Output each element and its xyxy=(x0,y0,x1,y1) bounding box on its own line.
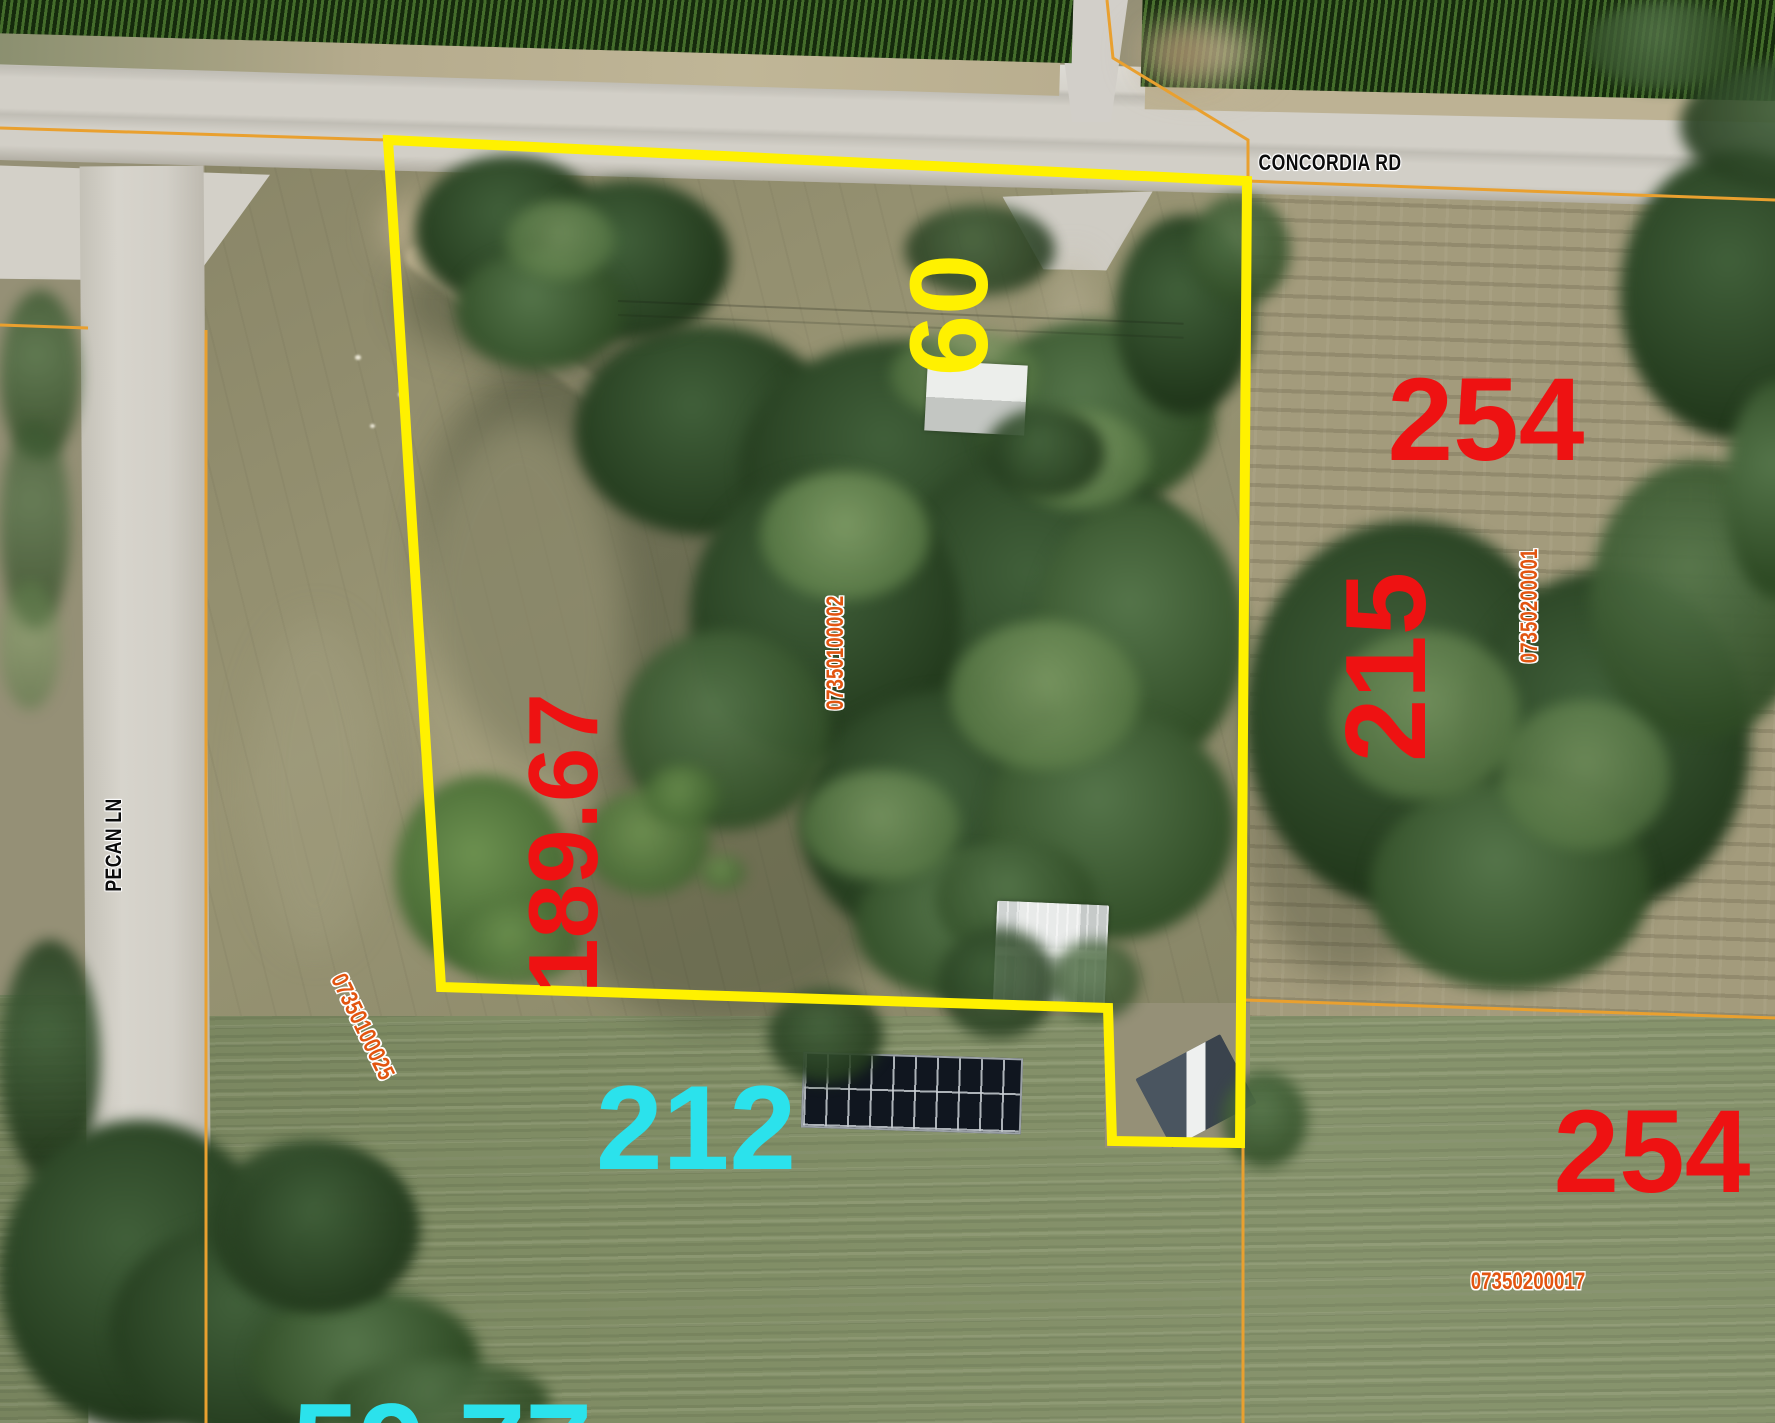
lot-number-partial-bottom: 59.77 xyxy=(292,1386,592,1423)
road-label-concordia: CONCORDIA RD xyxy=(1259,152,1402,174)
dimension-label-depth: 189.67 xyxy=(514,693,612,993)
dimension-label-frontage: 60 xyxy=(895,254,1005,376)
cadastral-line-southeast xyxy=(1245,1000,1775,1018)
parcel-id-highlighted: 07350100002 xyxy=(824,596,848,711)
cadastral-line-west-stub xyxy=(0,325,88,328)
lot-number-254-northeast: 254 xyxy=(1388,361,1585,479)
lot-number-212: 212 xyxy=(596,1068,796,1188)
lot-number-254-southeast: 254 xyxy=(1554,1093,1751,1211)
road-label-pecan: PECAN LN xyxy=(103,798,125,891)
cadastral-line-north xyxy=(1107,0,1248,182)
parcel-id-east: 07350200001 xyxy=(1518,549,1542,664)
aerial-map-canvas[interactable]: CONCORDIA RD PECAN LN 60 189.67 215 254 … xyxy=(0,0,1775,1423)
parcel-linework xyxy=(0,0,1775,1423)
parcel-id-south: 07350200017 xyxy=(1471,1270,1586,1294)
lot-number-215: 215 xyxy=(1330,572,1444,762)
